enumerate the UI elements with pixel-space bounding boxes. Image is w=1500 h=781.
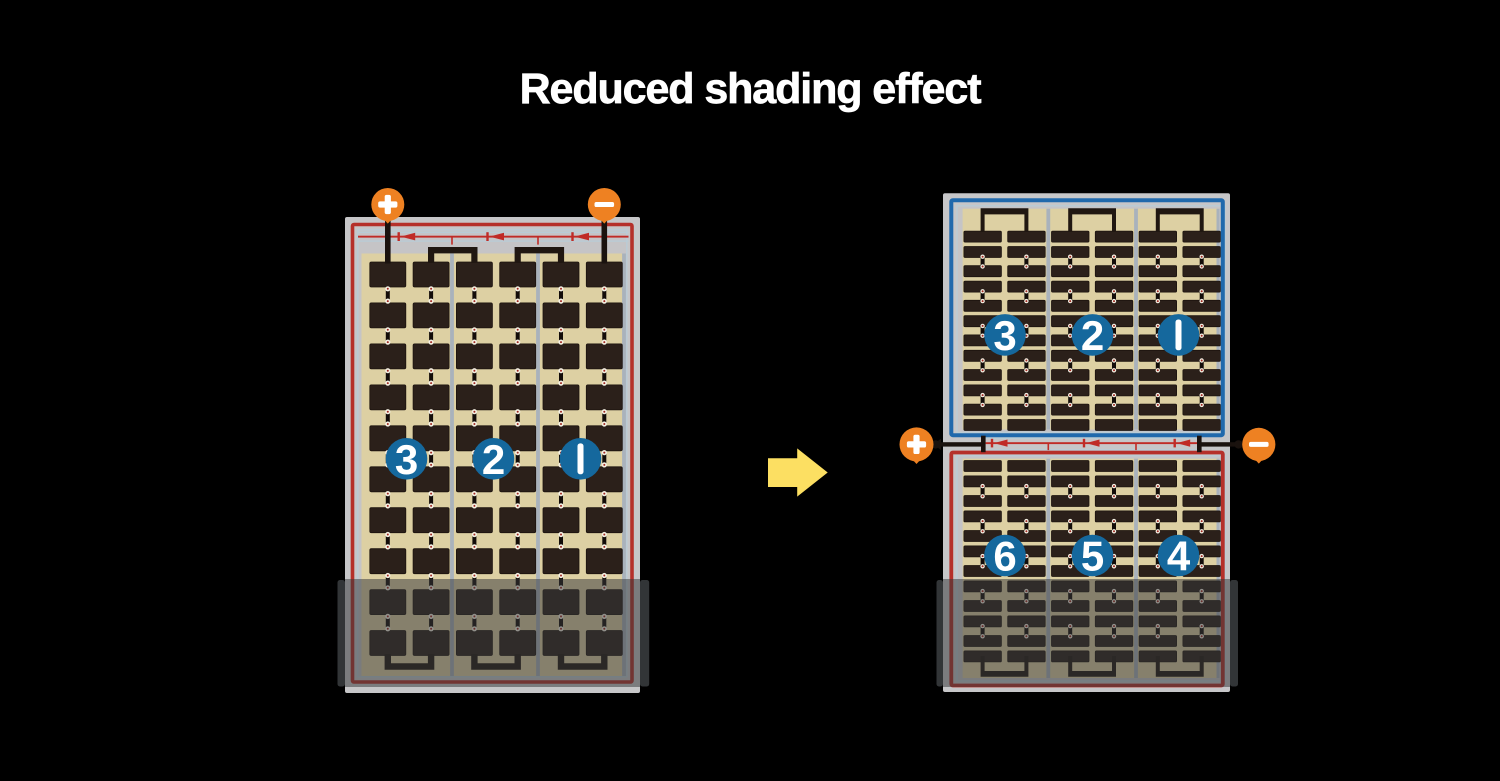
svg-text:5: 5	[1081, 533, 1104, 580]
svg-text:3: 3	[395, 436, 418, 483]
svg-text:2: 2	[482, 436, 505, 483]
svg-text:6: 6	[993, 533, 1016, 580]
svg-text:4: 4	[1167, 533, 1191, 580]
svg-text:3: 3	[993, 312, 1016, 359]
svg-text:2: 2	[1081, 312, 1104, 359]
svg-text:Reduced shading effect: Reduced shading effect	[520, 65, 982, 113]
